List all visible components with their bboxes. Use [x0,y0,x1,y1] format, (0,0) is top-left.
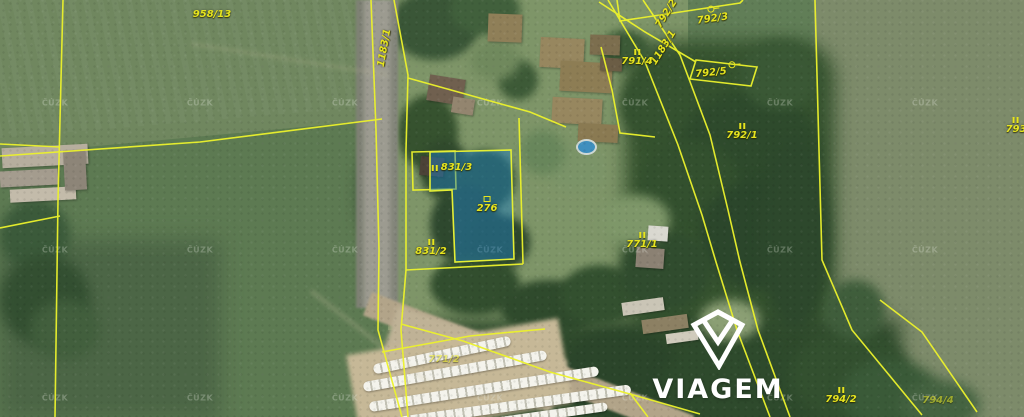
building-icon [484,196,491,202]
parcel-boundary [406,264,523,270]
parcel-label: 276 [477,196,498,214]
parcel-number: 771/1 [626,240,657,250]
map-viewport[interactable]: 958/131183/1792/21183/1792/3791/4792/579… [0,0,1024,417]
parcel-number: 958/13 [193,10,231,20]
parcel-boundary [0,144,60,147]
cadastral-lines [0,0,1024,417]
parcel-label: 794/2 [825,387,856,405]
parcel-label: 793 [1006,117,1024,135]
parcel-number: 831/3 [441,163,472,173]
land-use-key-icon [707,5,715,13]
parcel-number: 771/2 [428,355,459,365]
land-use-bars-icon [838,387,844,393]
parcel-boundary [815,0,922,415]
parcel-boundary [0,119,382,156]
parcel-label: 831/2 [415,239,446,257]
parcel-label: 831/3 [432,163,472,173]
parcel-label: 771/2 [428,355,459,365]
parcel-number: 792/1 [726,131,757,141]
viagem-logo-icon [689,308,747,370]
land-use-bars-icon [639,232,645,238]
land-use-bars-icon [634,49,640,55]
parcel-label: 771/1 [626,232,657,250]
parcel-number: 793 [1006,125,1024,135]
viagem-logo-text: VIAGEM [652,374,783,405]
parcel-boundary [401,270,408,417]
parcel-boundary [0,216,60,228]
parcel-number: 794/2 [825,395,856,405]
parcel-label: 791/4 [621,49,652,67]
parcel-label: 794/4 [922,396,953,406]
parcel-label: 958/13 [193,10,231,20]
land-use-bars-icon [739,123,745,129]
parcel-boundary [519,118,523,264]
parcel-boundary [408,78,566,127]
land-use-bars-icon [428,239,434,245]
parcel-boundary [55,0,63,417]
land-use-bars-icon [1013,117,1019,123]
land-use-key-icon [729,61,737,69]
parcel-number: 276 [477,204,498,214]
parcel-number: 791/4 [621,57,652,67]
parcel-number: 794/4 [922,396,953,406]
parcel-label: 792/1 [726,123,757,141]
viagem-watermark: VIAGEM [648,308,788,405]
parcel-number: 831/2 [415,247,446,257]
land-use-bars-icon [432,165,438,171]
parcel-boundary [394,0,408,270]
